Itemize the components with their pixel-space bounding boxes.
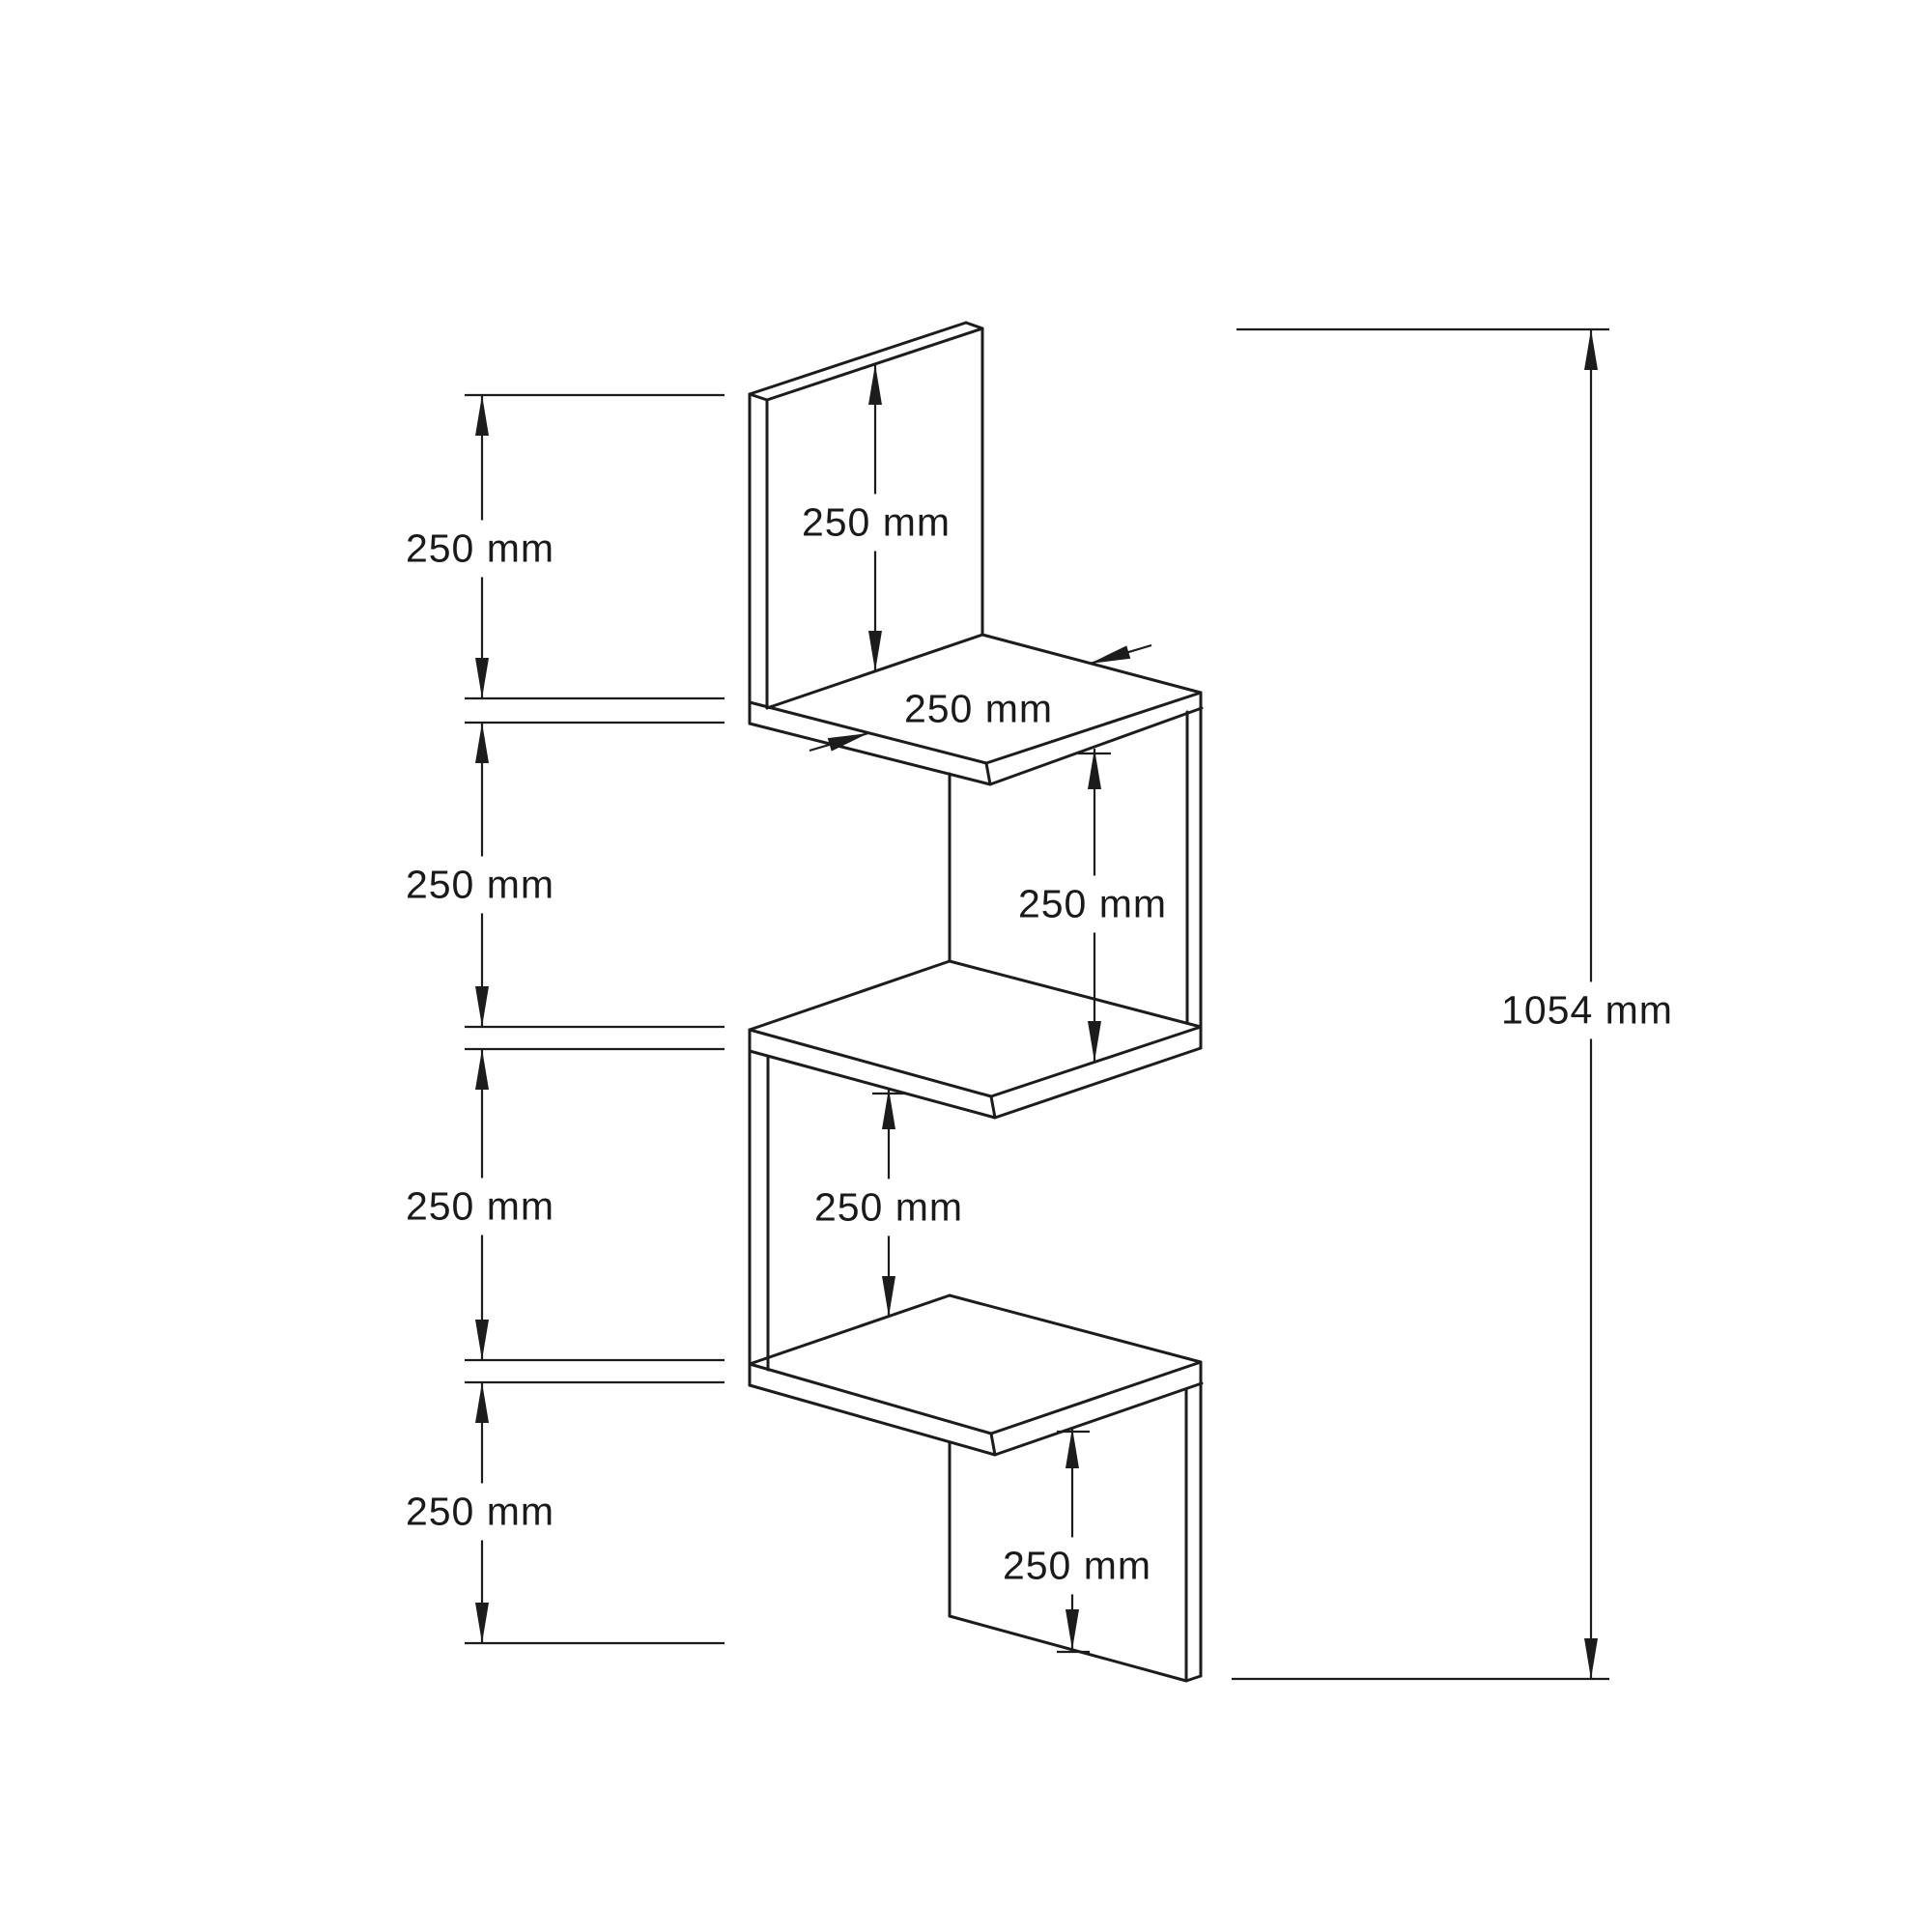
dim-label-gap-lower: 250 mm — [809, 1179, 969, 1236]
dim-label-left-3: 250 mm — [400, 1178, 560, 1235]
bottom-hanging-panel — [950, 1362, 1201, 1681]
left-support-panel — [750, 1051, 768, 1370]
dim-label-left-2: 250 mm — [400, 856, 560, 913]
dim-label-gap-upper: 250 mm — [1012, 875, 1173, 932]
dim-label-back-panel-height: 250 mm — [796, 494, 956, 551]
shelf-tier-3 — [750, 1295, 1202, 1455]
left-reference-lines — [465, 395, 724, 1643]
dim-label-shelf-depth: 250 mm — [898, 680, 1059, 737]
dim-label-bottom-panel-height: 250 mm — [997, 1537, 1157, 1594]
dim-label-left-1: 250 mm — [400, 520, 560, 577]
dim-label-left-4: 250 mm — [400, 1483, 560, 1540]
technical-drawing-canvas: 250 mm 250 mm 250 mm 250 mm 250 mm 250 m… — [0, 0, 1932, 1932]
shelf-dimension-drawing — [0, 0, 1932, 1932]
right-support-panel — [950, 693, 1201, 1027]
dim-label-total-height: 1054 mm — [1495, 981, 1679, 1038]
internal-dimension-lines — [810, 364, 1151, 1652]
shelf-tier-2 — [750, 961, 1201, 1118]
